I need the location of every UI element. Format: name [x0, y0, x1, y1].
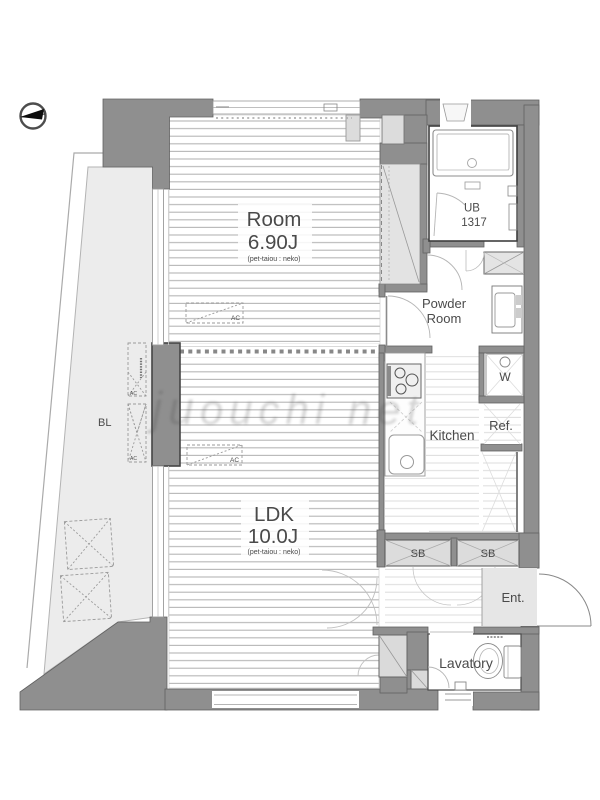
svg-text:AC: AC: [230, 457, 239, 464]
svg-text:(pet-taiou : neko): (pet-taiou : neko): [248, 549, 301, 556]
svg-text:juouchi net: juouchi net: [146, 382, 424, 434]
svg-text:AC: AC: [130, 391, 137, 397]
svg-text:W: W: [499, 370, 511, 384]
svg-text:Room: Room: [247, 208, 302, 231]
svg-text:SB: SB: [411, 548, 426, 560]
svg-text:Ent.: Ent.: [501, 590, 524, 605]
svg-text:AC: AC: [231, 315, 240, 322]
svg-text:1317: 1317: [461, 217, 487, 229]
svg-text:(pet-taiou : neko): (pet-taiou : neko): [248, 256, 301, 263]
svg-text:Powder: Powder: [422, 296, 467, 311]
svg-text:BL: BL: [98, 417, 111, 429]
svg-text:UB: UB: [464, 203, 480, 215]
svg-text:Ref.: Ref.: [489, 418, 513, 433]
svg-text:10.0J: 10.0J: [248, 525, 298, 548]
svg-text:LDK: LDK: [254, 503, 294, 526]
svg-text:SB: SB: [481, 548, 496, 560]
svg-text:6.90J: 6.90J: [248, 231, 298, 254]
svg-text:Room: Room: [427, 311, 462, 326]
svg-text:Kitchen: Kitchen: [429, 428, 474, 443]
svg-text:Lavatory: Lavatory: [439, 655, 493, 671]
svg-text:AC: AC: [130, 456, 137, 462]
